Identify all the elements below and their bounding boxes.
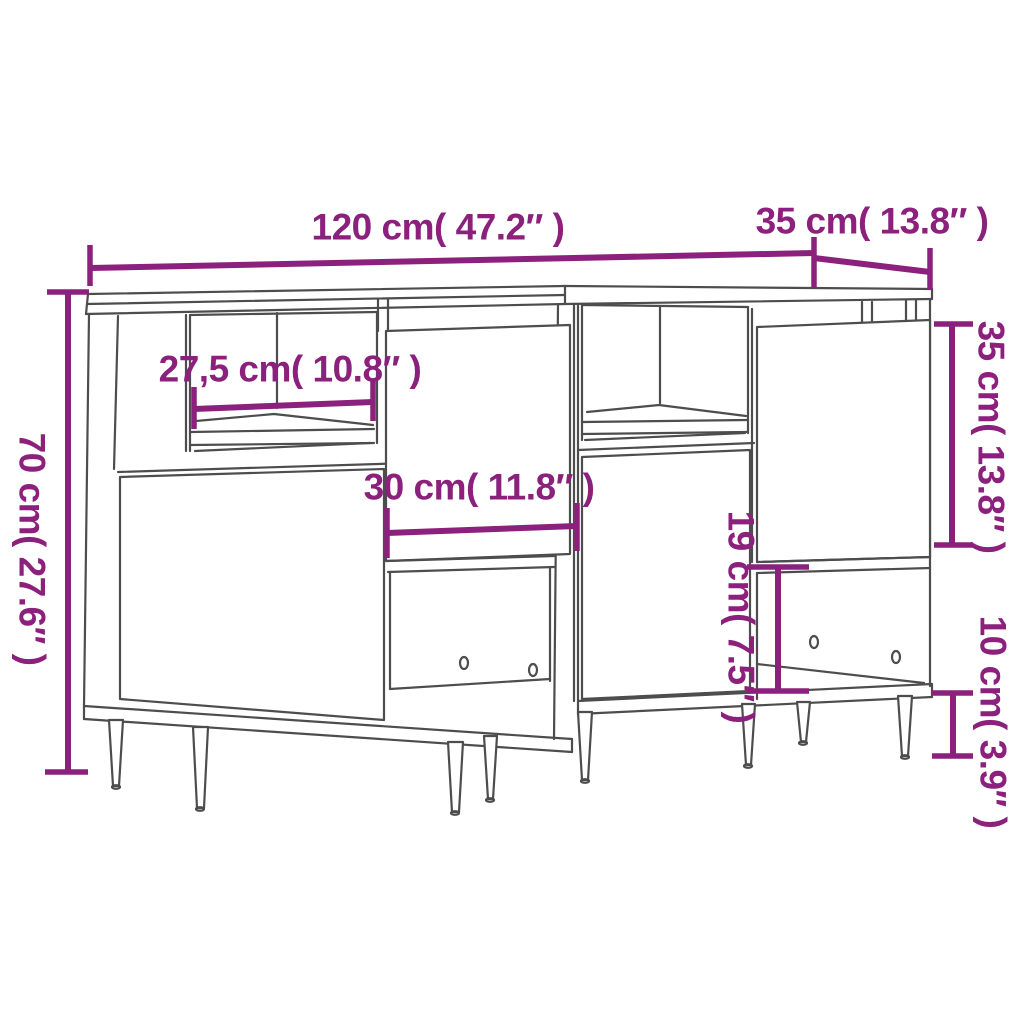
- diagram-canvas: 120 cm( 47.2″ ) 35 cm( 13.8″ ) 70 cm( 27…: [0, 0, 1024, 1024]
- dimension-label-door-width: 30 cm( 11.8″ ): [364, 469, 595, 506]
- dimension-label-compartment-width: 27,5 cm( 10.8″ ): [159, 351, 422, 388]
- dimension-line-leg-height: [932, 693, 973, 756]
- dimension-label-depth: 35 cm( 13.8″ ): [756, 203, 989, 240]
- dimension-line-door-height: [934, 324, 973, 545]
- dimension-label-open-compartment-height: 19 cm( 7.5″ ): [723, 511, 760, 724]
- sideboards-line-drawing: [0, 0, 1024, 1024]
- dimension-label-leg-height: 10 cm( 3.9″ ): [975, 616, 1012, 829]
- dimension-label-door-height: 35 cm( 13.8″ ): [973, 321, 1010, 554]
- dimension-label-height: 70 cm( 27.6″ ): [14, 433, 51, 666]
- dimension-line-depth: [814, 248, 930, 290]
- dimension-label-total-width: 120 cm( 47.2″ ): [312, 209, 565, 246]
